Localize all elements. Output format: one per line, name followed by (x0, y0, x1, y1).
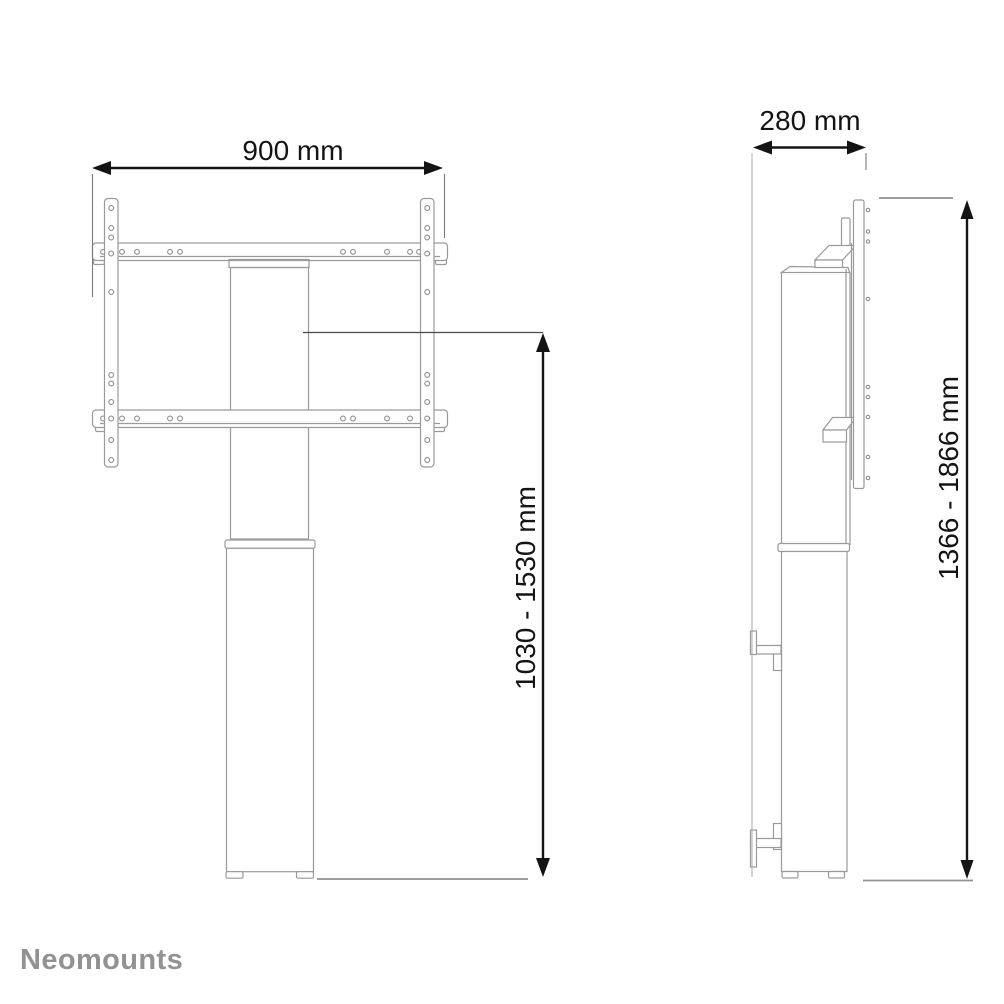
arrow-right-icon (424, 161, 443, 175)
side-inner-column (782, 267, 851, 545)
arrow-left-icon (753, 141, 772, 155)
side-view: 280 mm 1366 - 1866 mm (751, 105, 974, 881)
front-right-foot (297, 872, 314, 879)
front-height-dimension-label: 1030 - 1530 mm (510, 486, 541, 690)
side-top-plate (842, 218, 851, 248)
side-base-column (778, 544, 850, 879)
arrow-down-icon (961, 860, 974, 879)
side-top-crossbar-end (815, 246, 856, 268)
arrow-down-icon (536, 858, 550, 877)
side-wall-hook-upper (751, 631, 782, 671)
arrow-up-icon (961, 200, 974, 219)
front-left-rail (105, 199, 119, 468)
side-depth-dimension-label: 280 mm (759, 105, 860, 136)
technical-drawing-page: 900 mm 1030 - 1530 mm (0, 0, 1004, 1004)
side-front-foot (782, 872, 798, 879)
front-width-dimension-label: 900 mm (242, 135, 343, 166)
arrow-left-icon (92, 161, 111, 175)
neomounts-logo: Neomounts (20, 944, 183, 977)
side-height-dimension: 1366 - 1866 mm (863, 198, 974, 881)
side-mounting-rail (852, 200, 870, 489)
arrow-right-icon (847, 141, 866, 155)
side-wall-hook-lower (751, 824, 782, 868)
drawing-canvas: 900 mm 1030 - 1530 mm (0, 0, 1004, 1004)
side-rear-foot (829, 872, 845, 879)
front-view: 900 mm 1030 - 1530 mm (92, 135, 550, 879)
front-top-crossbar (93, 243, 448, 265)
arrow-up-icon (536, 333, 550, 352)
front-inner-column (231, 268, 309, 540)
side-rail-holes (866, 208, 869, 479)
front-base-column (225, 540, 315, 878)
front-left-foot (226, 872, 243, 879)
side-height-dimension-label: 1366 - 1866 mm (933, 376, 964, 580)
